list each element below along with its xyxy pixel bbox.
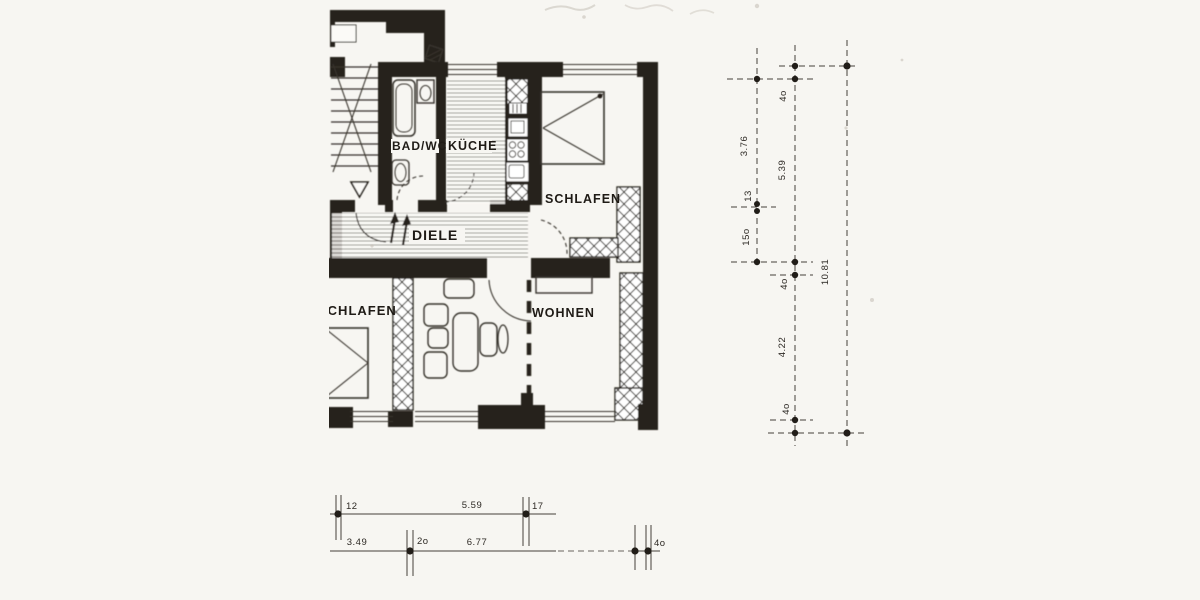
bottom-window-1 [350, 412, 393, 422]
dim-right-13: 13 [743, 190, 754, 202]
sideboard-icon [536, 277, 592, 293]
dim-right-40-bot: 4o [781, 403, 792, 415]
toilet-icon [417, 80, 434, 103]
top-window-1 [448, 65, 497, 75]
adjacent-unit-walls [330, 10, 445, 62]
floor-plan-scan: BAD/WC KÜCHE SCHLAFEN DIELE SCHLAFEN WOH… [0, 0, 1200, 600]
dimension-ticks [754, 62, 851, 436]
stair-right-wall [378, 62, 392, 205]
dim-bottom-677: 6.77 [467, 537, 488, 548]
bed-top-schlafen [541, 92, 604, 164]
room-label-kueche: KÜCHE [448, 138, 497, 153]
top-window-2 [563, 65, 637, 75]
dim-right-40-top: 4o [778, 90, 789, 102]
wohnen-furniture [424, 277, 592, 378]
bathtub-icon [393, 80, 415, 136]
plan-geometry [300, 10, 658, 430]
staircase [330, 57, 378, 173]
dim-right-150: 15o [741, 228, 752, 245]
bottom-window-3 [545, 412, 615, 422]
bed-left-schlafen [326, 328, 368, 398]
dimension-chain-bottom: 12 5.59 17 3.49 2o 6.77 4o [330, 495, 666, 576]
kitchen-fixtures [506, 79, 529, 204]
dim-right-total: 10.81 [820, 259, 831, 285]
dim-bottom-559: 5.59 [462, 500, 483, 511]
entrance-triangle-marker [351, 182, 368, 197]
room-label-bad-wc: BAD/WC [392, 139, 447, 153]
room-label-wohnen: WOHNEN [532, 306, 595, 320]
dim-bottom-17: 17 [532, 501, 544, 512]
dim-bottom-40: 4o [654, 538, 666, 549]
bottom-window-2 [415, 412, 478, 422]
room-label-schlafen-left: SCHLAFEN [318, 303, 397, 318]
dim-bottom-349: 3.49 [347, 537, 368, 548]
dim-right-422: 4.22 [777, 337, 788, 358]
dim-right-40-mid: 4o [779, 278, 790, 290]
middle-wall [300, 258, 658, 278]
table-icon [453, 313, 478, 371]
dim-bottom-20: 2o [417, 536, 429, 547]
dim-right-376: 3.76 [739, 136, 750, 157]
room-label-diele: DIELE [412, 227, 458, 243]
room-label-schlafen-top: SCHLAFEN [545, 192, 621, 206]
floor-plan-svg: BAD/WC KÜCHE SCHLAFEN DIELE SCHLAFEN WOH… [0, 0, 1200, 600]
dim-right-539: 5.39 [777, 160, 788, 181]
dimension-chain-right: 4o 3.76 13 15o 5.39 4o 4.22 4o 10.81 [727, 40, 868, 450]
dim-bottom-12: 12 [346, 501, 358, 512]
right-wall [643, 62, 658, 430]
